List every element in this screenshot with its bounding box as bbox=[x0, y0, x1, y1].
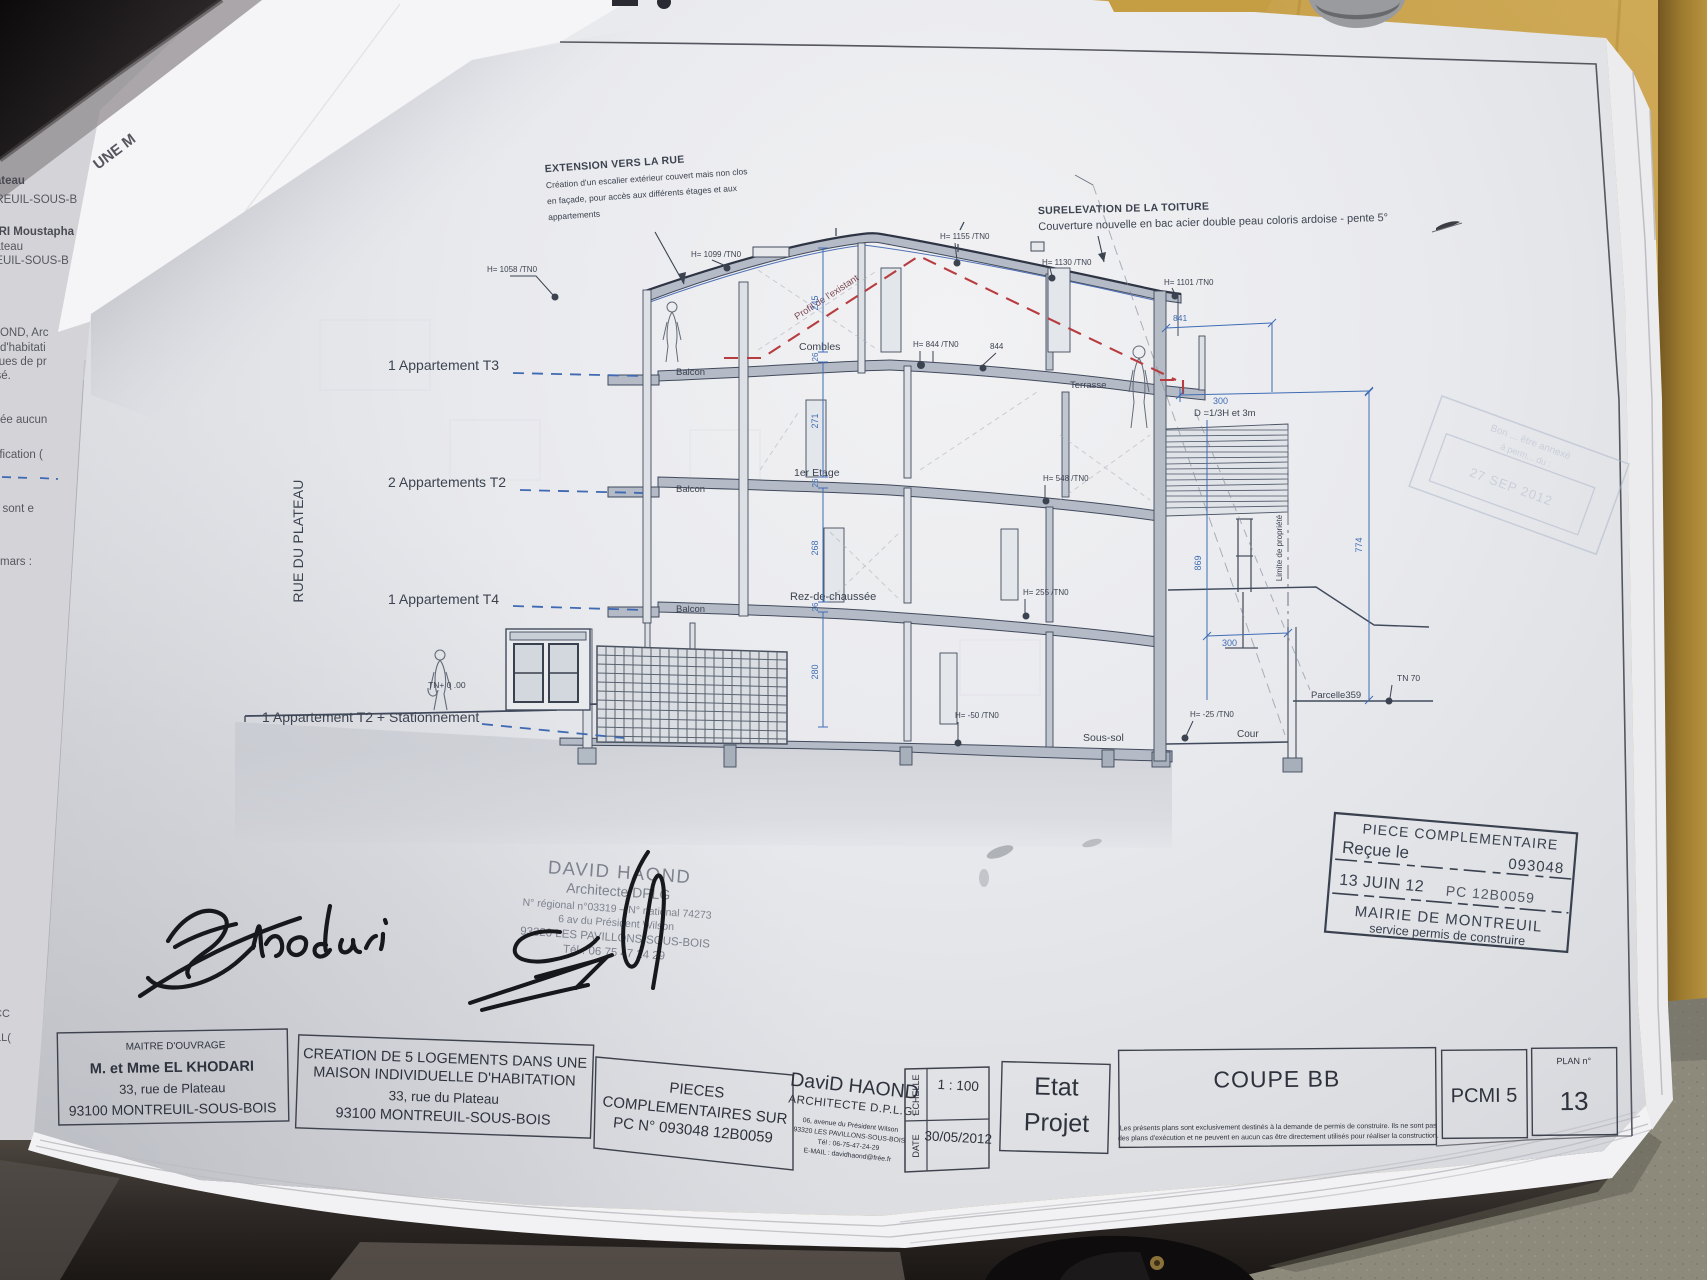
svg-text:Balcon: Balcon bbox=[676, 484, 705, 495]
svg-text:1 Appartement T3: 1 Appartement T3 bbox=[388, 357, 499, 373]
svg-text:HAOND, Arc: HAOND, Arc bbox=[0, 327, 49, 339]
svg-text:M. et Mme EL KHODARI: M. et Mme EL KHODARI bbox=[90, 1059, 254, 1078]
svg-text:PCMI 5: PCMI 5 bbox=[1451, 1085, 1518, 1108]
svg-text:Etat: Etat bbox=[1034, 1072, 1079, 1101]
svg-text:280: 280 bbox=[810, 664, 820, 679]
svg-text:alisé.: alisé. bbox=[0, 370, 11, 382]
svg-text:Terrasse: Terrasse bbox=[1070, 380, 1106, 391]
svg-text:Limite de propriété: Limite de propriété bbox=[1275, 514, 1284, 581]
svg-text:268: 268 bbox=[810, 540, 820, 555]
svg-text:Balcon: Balcon bbox=[676, 367, 705, 378]
svg-text:nts sont e: nts sont e bbox=[0, 503, 34, 515]
svg-text:Plateau: Plateau bbox=[0, 175, 25, 187]
svg-text:odification (: odification ( bbox=[0, 449, 43, 461]
svg-text:33, rue de Plateau: 33, rue de Plateau bbox=[119, 1080, 225, 1097]
svg-text:isques de pr: isques de pr bbox=[0, 356, 47, 368]
svg-text:2 Appartements T2: 2 Appartements T2 bbox=[388, 474, 506, 490]
svg-text:H= 1058 /TN0: H= 1058 /TN0 bbox=[487, 265, 538, 274]
svg-text:300: 300 bbox=[1213, 396, 1228, 406]
svg-text:245: 245 bbox=[810, 295, 820, 310]
svg-text:TREUIL-SOUS-B: TREUIL-SOUS-B bbox=[0, 255, 69, 267]
svg-text:Plateau: Plateau bbox=[0, 241, 23, 253]
svg-text:TN+ 0 .00: TN+ 0 .00 bbox=[428, 680, 466, 690]
svg-text:MAITRE D'OUVRAGE: MAITRE D'OUVRAGE bbox=[126, 1040, 226, 1053]
svg-text:Rez-de-chaussée: Rez-de-chaussée bbox=[790, 591, 876, 603]
svg-text:26: 26 bbox=[811, 352, 820, 361]
svg-text:1 Appartement T4: 1 Appartement T4 bbox=[388, 591, 499, 607]
svg-text:CC: CC bbox=[0, 1008, 10, 1020]
svg-text:Cour: Cour bbox=[1237, 729, 1259, 740]
svg-text:1er Etage: 1er Etage bbox=[794, 467, 840, 479]
svg-text:H= -50 /TN0: H= -50 /TN0 bbox=[955, 711, 999, 720]
svg-text:H= 844 /TN0: H= 844 /TN0 bbox=[913, 340, 959, 349]
svg-text:869: 869 bbox=[1193, 555, 1203, 570]
svg-text:H= 255 /TN0: H= 255 /TN0 bbox=[1023, 588, 1069, 597]
svg-text:841: 841 bbox=[1173, 313, 1187, 323]
svg-text:300: 300 bbox=[1222, 638, 1237, 648]
svg-text:26: 26 bbox=[811, 602, 820, 611]
svg-text:ECHELLE: ECHELLE bbox=[911, 1074, 921, 1115]
svg-text:774: 774 bbox=[1354, 537, 1364, 552]
svg-text:TN 70: TN 70 bbox=[1397, 673, 1420, 683]
svg-text:H= -25 /TN0: H= -25 /TN0 bbox=[1190, 710, 1234, 719]
svg-text:Parcelle359: Parcelle359 bbox=[1311, 690, 1361, 701]
svg-text:D =1/3H et 3m: D =1/3H et 3m bbox=[1194, 408, 1256, 419]
svg-text:créée aucun: créée aucun bbox=[0, 414, 47, 426]
svg-text:H= 1099 /TN0: H= 1099 /TN0 bbox=[691, 250, 742, 259]
svg-text:PLAN n°: PLAN n° bbox=[1556, 1056, 1591, 1066]
svg-text:H= 1101 /TN0: H= 1101 /TN0 bbox=[1164, 278, 1214, 287]
svg-text:H= 548 /TN0: H= 548 /TN0 bbox=[1043, 474, 1089, 483]
svg-text:on d'habitati: on d'habitati bbox=[0, 342, 46, 354]
svg-text:H= 1155 /TN0: H= 1155 /TN0 bbox=[940, 232, 990, 241]
svg-text:26: 26 bbox=[811, 478, 820, 487]
svg-text:Sous-sol: Sous-sol bbox=[1083, 732, 1124, 744]
svg-text:1 : 100: 1 : 100 bbox=[937, 1077, 979, 1094]
svg-text:09 mars :: 09 mars : bbox=[0, 556, 32, 568]
svg-text:Balcon: Balcon bbox=[676, 604, 705, 615]
svg-text:Projet: Projet bbox=[1024, 1108, 1090, 1138]
svg-text:NTREUIL-SOUS-B: NTREUIL-SOUS-B bbox=[0, 194, 77, 206]
svg-text:H= 1130 /TN0: H= 1130 /TN0 bbox=[1042, 258, 1092, 267]
svg-text:844: 844 bbox=[990, 342, 1004, 351]
svg-text:RUE DU PLATEAU: RUE DU PLATEAU bbox=[290, 479, 306, 602]
svg-text:1 Appartement T2 + Stationneme: 1 Appartement T2 + Stationnement bbox=[262, 709, 479, 725]
svg-text:DATE: DATE bbox=[911, 1134, 921, 1157]
svg-text:COUPE BB: COUPE BB bbox=[1213, 1065, 1340, 1092]
svg-text:13: 13 bbox=[1559, 1086, 1588, 1116]
svg-text:ILL(: ILL( bbox=[0, 1032, 11, 1044]
svg-text:DARI Moustapha: DARI Moustapha bbox=[0, 226, 75, 238]
svg-text:Combles: Combles bbox=[799, 341, 840, 353]
svg-text:271: 271 bbox=[810, 413, 820, 428]
